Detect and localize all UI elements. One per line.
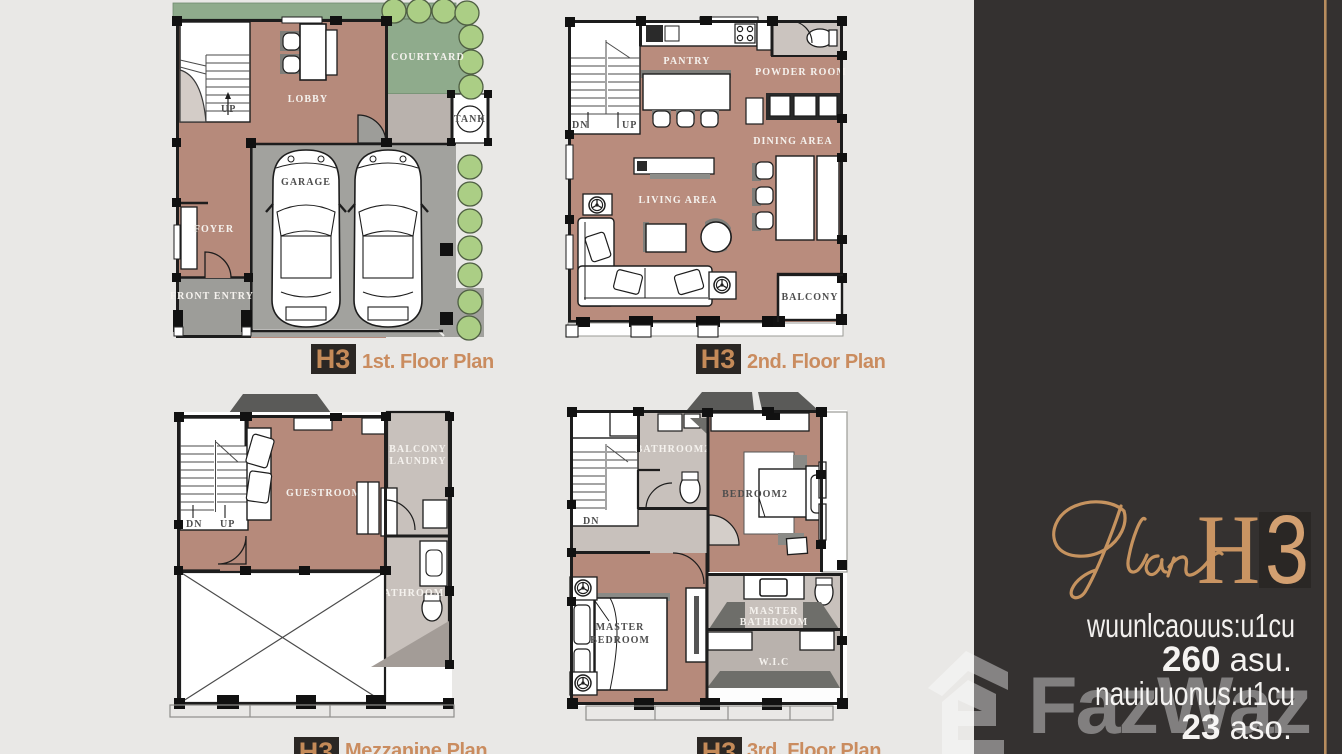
svg-text:TANK: TANK <box>454 114 486 125</box>
svg-text:POWDER ROOM: POWDER ROOM <box>755 67 847 78</box>
svg-text:FazWaz: FazWaz <box>1028 661 1310 751</box>
svg-text:H: H <box>1197 494 1260 605</box>
svg-text:Mezzanine Plan: Mezzanine Plan <box>345 740 487 754</box>
svg-text:PANTRY: PANTRY <box>663 56 710 67</box>
svg-text:GUESTROOM: GUESTROOM <box>286 488 362 499</box>
svg-text:FOYER: FOYER <box>194 224 235 235</box>
svg-text:BATHROOM1: BATHROOM1 <box>376 588 451 599</box>
svg-text:H3: H3 <box>299 737 334 754</box>
svg-text:COURTYARD: COURTYARD <box>391 52 465 63</box>
svg-text:FRONT ENTRY: FRONT ENTRY <box>170 291 254 302</box>
svg-text:LAUNDRY: LAUNDRY <box>389 456 446 467</box>
svg-text:DN: DN <box>186 519 202 530</box>
svg-text:2nd. Floor Plan: 2nd. Floor Plan <box>747 351 885 373</box>
svg-text:BATHROOM2: BATHROOM2 <box>636 444 711 455</box>
svg-text:BEDROOM: BEDROOM <box>590 635 650 646</box>
svg-text:MASTER: MASTER <box>596 622 645 633</box>
svg-text:H3: H3 <box>701 344 736 374</box>
svg-text:DN: DN <box>583 516 599 527</box>
svg-text:BALCONY: BALCONY <box>389 444 447 455</box>
svg-text:H3: H3 <box>702 737 737 754</box>
svg-text:LIVING AREA: LIVING AREA <box>638 195 717 206</box>
svg-text:LOBBY: LOBBY <box>288 94 329 105</box>
svg-text:1st. Floor Plan: 1st. Floor Plan <box>362 351 494 373</box>
svg-text:3rd. Floor Plan: 3rd. Floor Plan <box>747 740 881 754</box>
svg-text:DN: DN <box>572 120 588 131</box>
svg-text:BATHROOM: BATHROOM <box>740 617 809 628</box>
svg-text:DINING AREA: DINING AREA <box>753 136 833 147</box>
svg-text:UP: UP <box>622 120 637 131</box>
svg-text:UP: UP <box>220 519 235 530</box>
svg-text:wuunlcaouus:u1cu: wuunlcaouus:u1cu <box>1086 607 1295 644</box>
svg-text:BEDROOM2: BEDROOM2 <box>722 489 788 500</box>
svg-text:BALCONY: BALCONY <box>781 292 838 303</box>
svg-text:MASTER: MASTER <box>749 606 798 617</box>
svg-text:UP: UP <box>221 104 236 115</box>
svg-text:H3: H3 <box>316 344 351 374</box>
svg-text:GARAGE: GARAGE <box>281 177 331 188</box>
svg-text:W.I.C: W.I.C <box>759 657 790 668</box>
svg-text:3: 3 <box>1265 495 1309 604</box>
